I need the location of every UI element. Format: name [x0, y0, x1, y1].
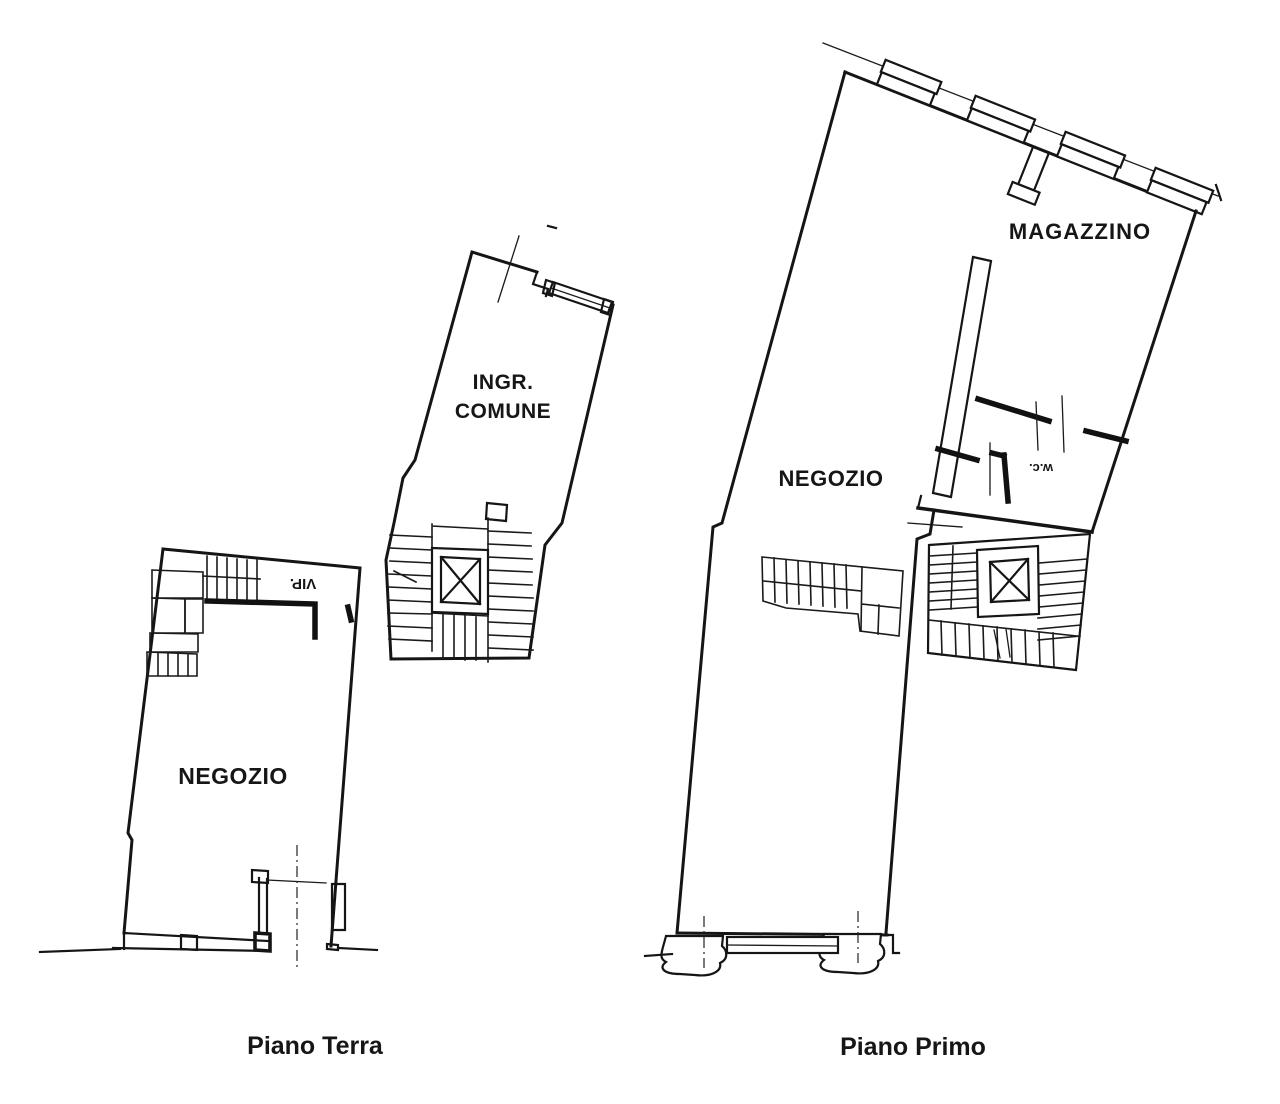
stair-balustrade [207, 601, 315, 637]
shop-right-wall [886, 510, 934, 933]
partition-wall [933, 257, 991, 497]
common-staircase [388, 503, 533, 662]
entrance-walls [386, 252, 613, 659]
left-wall [677, 72, 845, 933]
top-windows [876, 60, 1213, 215]
lift-cross [990, 559, 1029, 602]
floor-plan-drawing: NEGOZIO VIP. INGR. [0, 0, 1280, 1104]
first-floor-caption: Piano Primo [840, 1033, 986, 1061]
section-line [498, 236, 519, 302]
entrance-window [543, 280, 613, 315]
shop-wall-left [124, 549, 163, 933]
shop-front [40, 845, 377, 967]
first-floor-unit: w.c. NEGO [645, 43, 1221, 975]
ground-floor-shop-unit: NEGOZIO VIP. [40, 549, 377, 967]
stair-post [486, 503, 507, 521]
ground-floor-shop-label: NEGOZIO [178, 763, 288, 789]
pillar-left [661, 936, 726, 975]
entrance-label-line2: COMUNE [455, 400, 551, 423]
lift-cross [441, 557, 480, 604]
wall-stub [348, 607, 351, 620]
facade-line-end [1216, 185, 1221, 200]
entrance-recess-wall [259, 878, 267, 933]
ground-floor-stair-annotation: VIP. [290, 575, 316, 592]
first-floor-shop-label: NEGOZIO [779, 466, 884, 491]
warehouse-bottom-wall [918, 508, 1092, 532]
floor-plan-page: NEGOZIO VIP. INGR. [0, 0, 1280, 1104]
first-floor-side-stair [762, 557, 903, 636]
first-floor-main-stair [928, 534, 1090, 670]
wc-label: w.c. [1029, 461, 1054, 476]
wall-pillar [1008, 145, 1055, 205]
entrance-label-line1: INGR. [473, 371, 534, 394]
ground-floor-stair [147, 556, 351, 676]
tick-mark [548, 226, 556, 228]
shop-walls-top-right [163, 549, 360, 946]
ground-floor-caption: Piano Terra [247, 1032, 384, 1060]
first-floor-front [645, 911, 899, 975]
ground-floor-entrance-unit: INGR. COMUNE [386, 226, 613, 662]
warehouse-label: MAGAZZINO [1009, 219, 1151, 244]
ground-line-left [40, 949, 120, 952]
right-wall [1092, 211, 1196, 532]
ground-line-right [338, 948, 377, 950]
